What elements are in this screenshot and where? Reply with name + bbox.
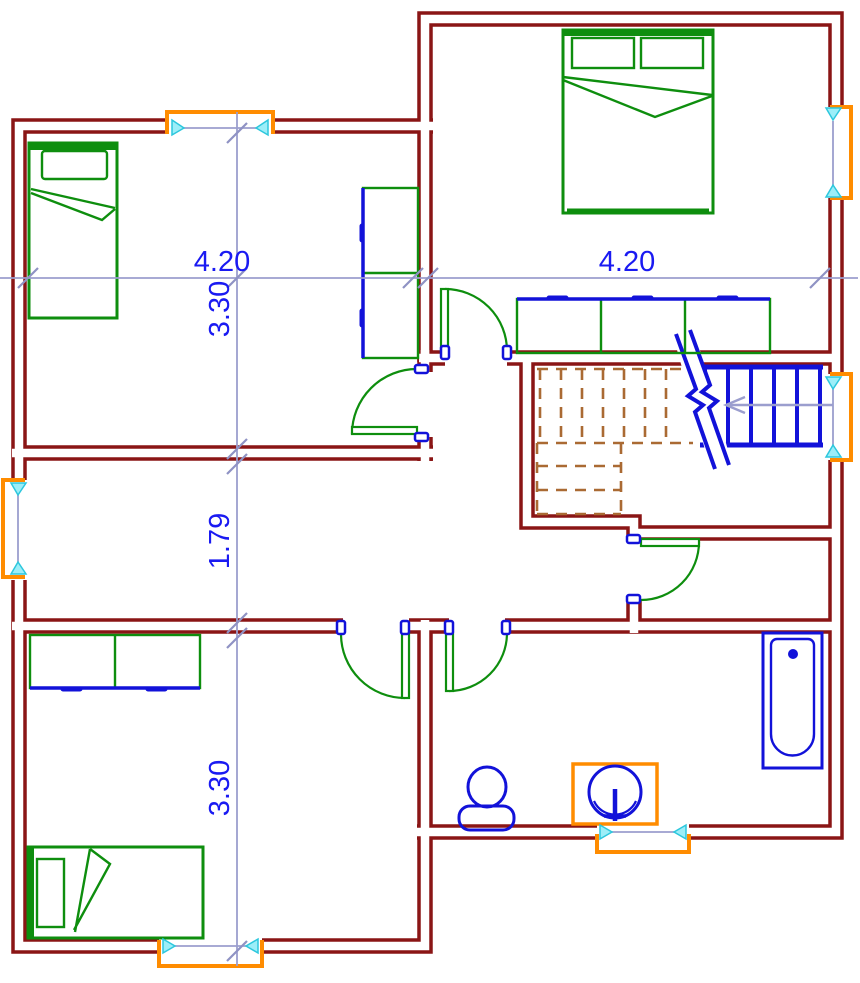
door-jamb	[503, 346, 511, 359]
wardrobe-dividers	[601, 299, 685, 353]
door-jamb	[441, 346, 449, 359]
door-jamb	[502, 621, 510, 634]
window-sill-marker	[163, 939, 175, 953]
window-frame	[167, 112, 273, 134]
door-leaf	[441, 289, 448, 351]
door-leaf	[641, 539, 699, 546]
stairs-direction-arrow	[726, 397, 833, 413]
bed-blanket-fold	[74, 849, 110, 932]
dimension-label-bottom-height: 3.30	[204, 760, 236, 816]
bed-blanket-fold	[563, 77, 712, 117]
wardrobe-three-door	[517, 298, 770, 353]
bathtub	[763, 633, 822, 768]
window-sill-marker	[826, 377, 841, 389]
window-frame	[3, 480, 25, 577]
bed-pillow-left	[572, 38, 634, 68]
bed-pillow-right	[641, 38, 703, 68]
dimension-label-left-width: 4.20	[194, 246, 250, 278]
window-frame	[597, 834, 689, 852]
window-sill-marker	[826, 445, 841, 457]
window-top	[167, 112, 273, 135]
bathtub-drain	[788, 649, 798, 659]
window-sill-marker	[11, 483, 26, 495]
wardrobe-body	[517, 299, 770, 353]
door-swing-arc	[352, 369, 417, 434]
window-sill-marker	[674, 825, 686, 839]
stairs-hidden-flight	[537, 369, 693, 516]
toilet	[459, 767, 514, 830]
window-left-corridor	[3, 480, 26, 577]
door-jamb	[415, 433, 428, 441]
door-swing-arc	[341, 634, 405, 698]
dimension-label-right-width: 4.20	[599, 246, 655, 278]
bed-blanket-fold	[31, 189, 115, 220]
door-storage-room	[627, 535, 699, 603]
door-jamb	[627, 595, 640, 603]
door-jamb	[627, 535, 640, 543]
window-right-bedroom	[826, 107, 851, 198]
door-swing-arc	[445, 289, 507, 351]
window-sill-marker	[826, 108, 841, 120]
door-jamb	[445, 621, 453, 634]
window-frame	[159, 940, 262, 966]
door-jamb	[337, 621, 345, 634]
toilet-bowl	[468, 767, 506, 807]
window-bottom-bathroom	[597, 825, 689, 852]
door-top-left-room	[352, 365, 428, 441]
door-swing-arc	[449, 633, 507, 691]
dimension-label-top-height: 3.30	[204, 281, 236, 337]
single-bed-top-left	[29, 143, 117, 318]
floor-plan-canvas: 4.20 4.20 3.30 1.79 3.30	[0, 0, 860, 983]
door-bathroom	[445, 621, 510, 691]
door-jamb	[415, 365, 428, 373]
bed-frame	[563, 30, 713, 213]
door-swing-arc	[641, 542, 699, 600]
window-sill-marker	[246, 939, 258, 953]
door-leaf	[402, 633, 409, 698]
door-bottom-left-bedroom	[337, 621, 409, 698]
door-top-right-room	[441, 289, 511, 359]
window-sill-marker	[172, 120, 184, 135]
bed-frame	[28, 847, 203, 938]
door-leaf	[352, 427, 417, 434]
window-sill-marker	[600, 825, 612, 839]
window-sill-marker	[11, 562, 26, 574]
door-leaf	[446, 633, 453, 691]
window-sill-marker	[256, 120, 268, 135]
bed-pillow	[42, 151, 107, 179]
double-bed-top-right	[563, 30, 713, 213]
sink-vanity	[573, 764, 657, 824]
floor-plan-page: 4.20 4.20 3.30 1.79 3.30	[0, 0, 860, 983]
wardrobe-tall	[362, 188, 418, 358]
single-bed-bottom-left	[28, 847, 203, 938]
window-bottom-bedroom	[159, 939, 262, 966]
window-sill-marker	[826, 185, 841, 197]
door-jamb	[401, 621, 409, 634]
wardrobe-low	[30, 635, 200, 689]
dimension-label-corridor-height: 1.79	[204, 513, 236, 569]
window-right-stairs	[826, 374, 851, 460]
bed-pillow	[37, 859, 64, 927]
